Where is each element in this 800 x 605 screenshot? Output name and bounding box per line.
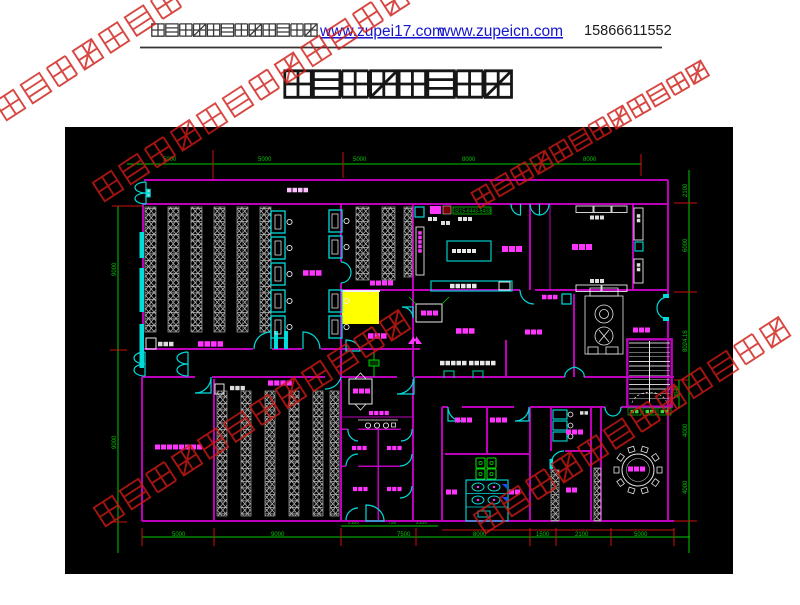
svg-text:8000: 8000 <box>462 157 476 163</box>
svg-text:8024.16: 8024.16 <box>683 330 689 352</box>
svg-text:2100: 2100 <box>575 532 589 538</box>
svg-text:9000: 9000 <box>271 532 285 538</box>
svg-text:www.zupeicn.com: www.zupeicn.com <box>438 23 563 40</box>
svg-text:5000: 5000 <box>353 157 367 163</box>
svg-text:2100: 2100 <box>683 183 689 197</box>
svg-text:1500: 1500 <box>536 532 550 538</box>
svg-text:15866611552: 15866611552 <box>584 23 672 39</box>
svg-text:5000: 5000 <box>634 532 648 538</box>
svg-text:5000: 5000 <box>258 157 272 163</box>
svg-text:3215-6443-5433: 3215-6443-5433 <box>454 209 491 215</box>
svg-text:9000: 9000 <box>112 435 118 449</box>
svg-text:5000: 5000 <box>172 532 186 538</box>
svg-text:6000: 6000 <box>683 238 689 252</box>
svg-text:7500: 7500 <box>397 532 411 538</box>
svg-text:8000: 8000 <box>583 157 597 163</box>
svg-text:4000: 4000 <box>683 480 689 494</box>
svg-text:4000: 4000 <box>683 423 689 437</box>
svg-text:9000: 9000 <box>112 262 118 276</box>
